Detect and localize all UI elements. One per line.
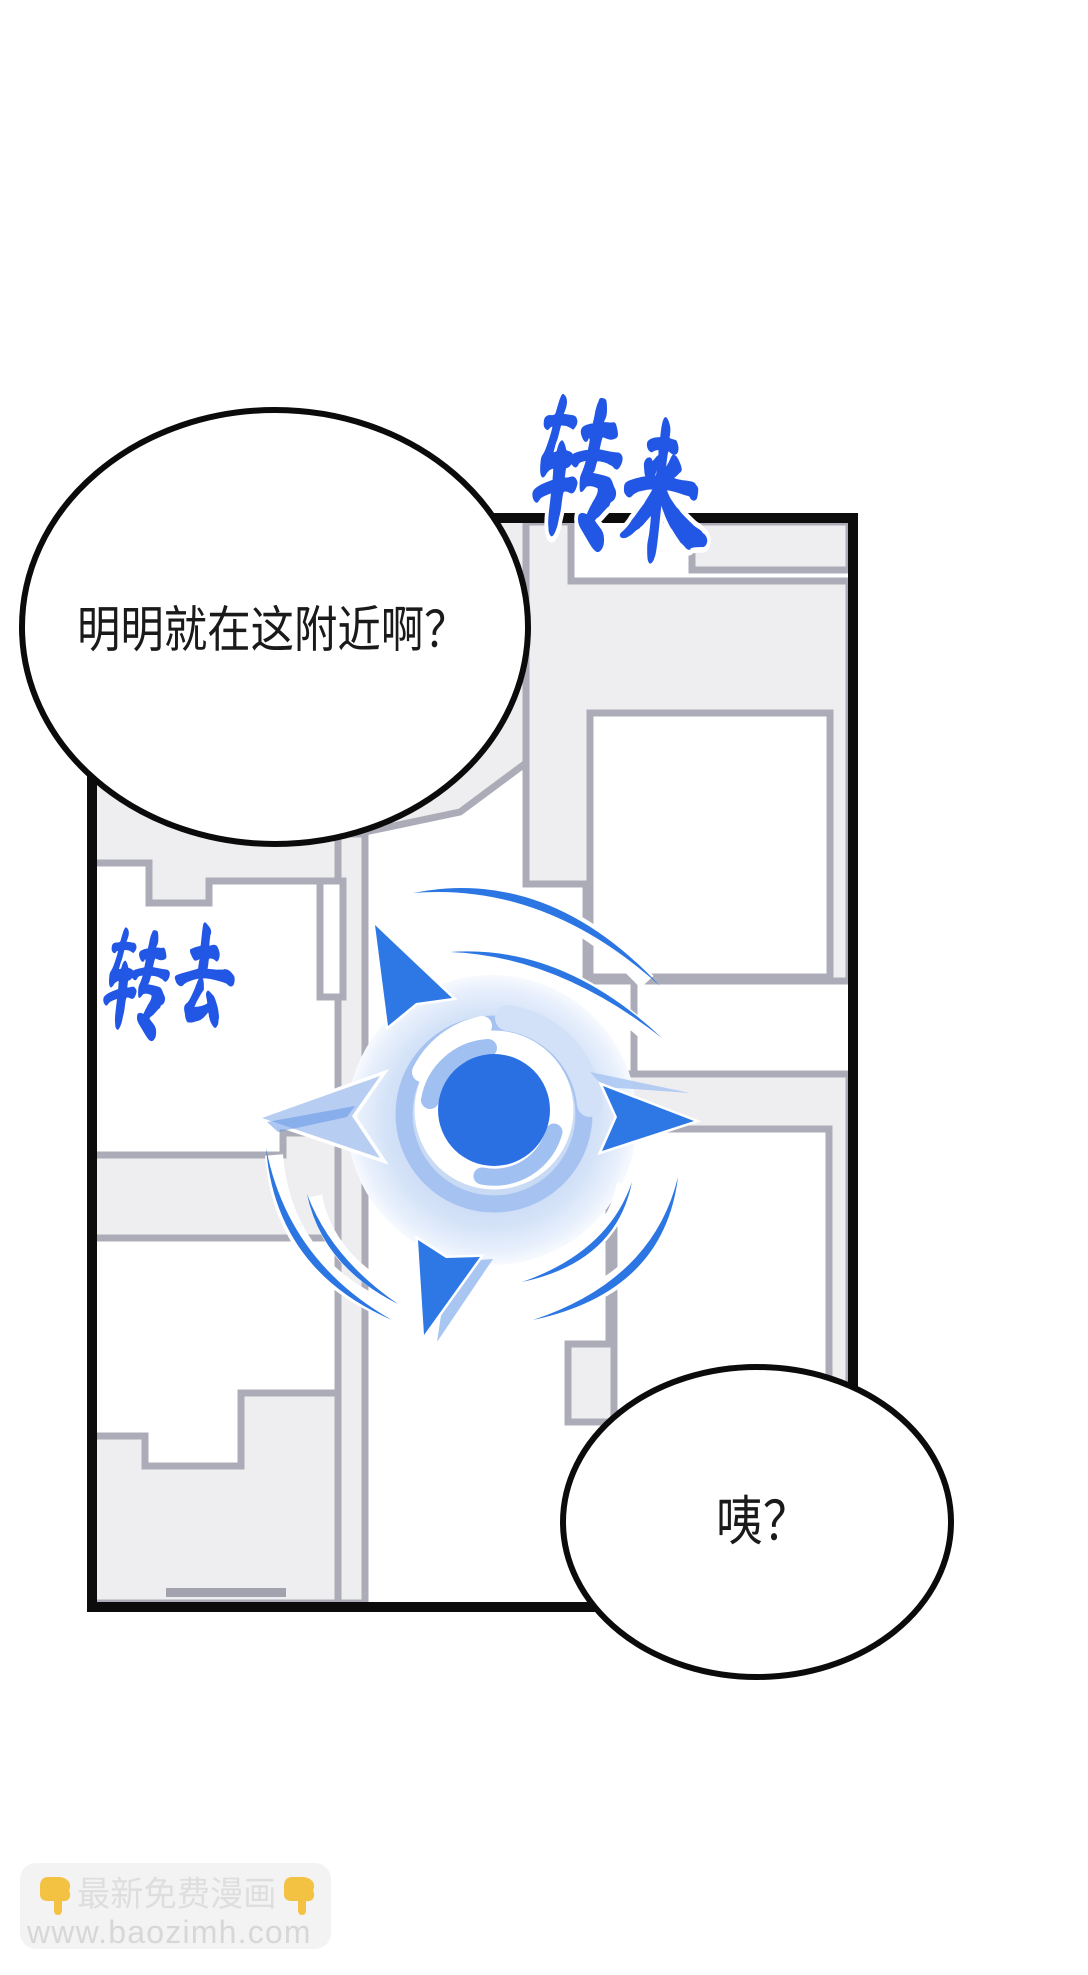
svg-text:www.baozimh.com: www.baozimh.com: [26, 1914, 312, 1950]
